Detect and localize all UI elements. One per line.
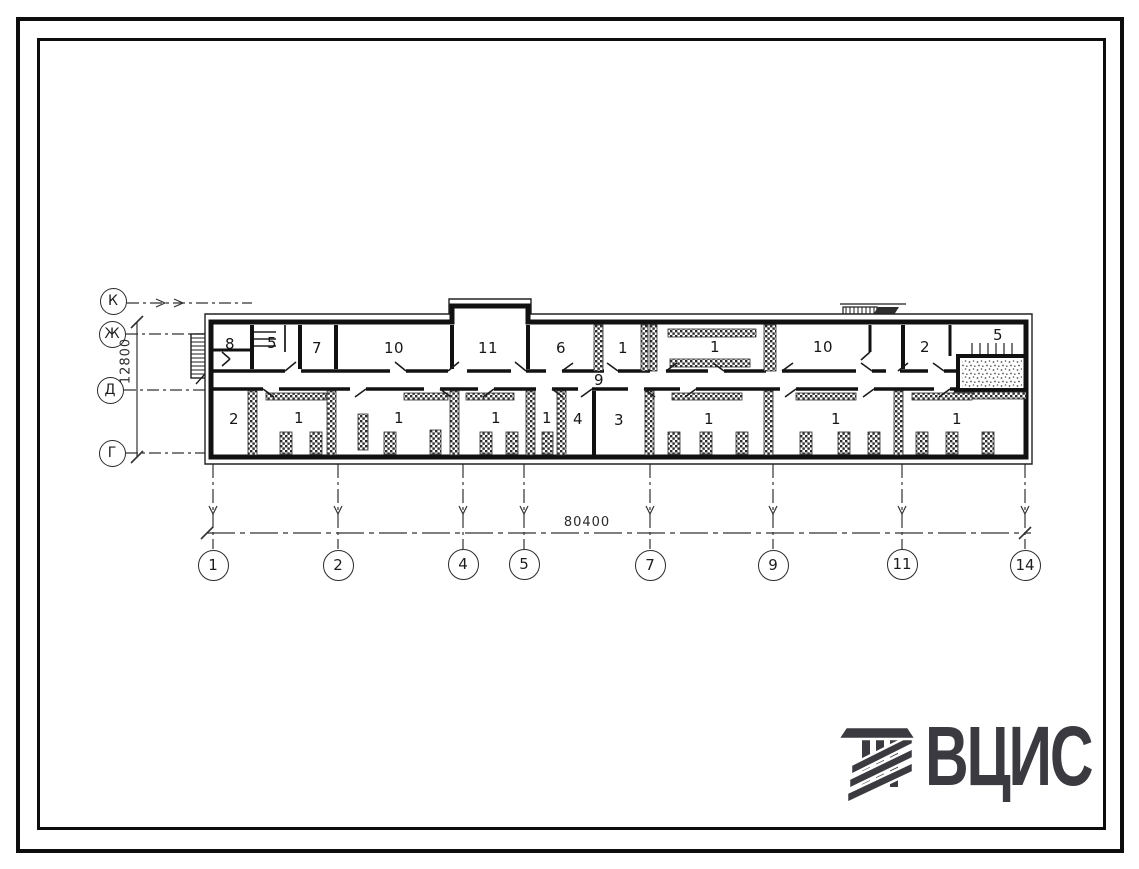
dimension-total-width: 12800 <box>119 338 134 384</box>
room-label-1: 1 <box>394 409 404 427</box>
room-label-2: 2 <box>920 338 930 356</box>
room-label-1: 1 <box>952 410 962 428</box>
axis-marker-col-9: 9 <box>758 550 789 581</box>
axis-marker-row-Г: Г <box>99 440 126 467</box>
room-label-9: 9 <box>594 371 604 389</box>
room-label-1: 1 <box>491 409 501 427</box>
room-label-1: 1 <box>618 339 628 357</box>
room-label-2: 2 <box>229 410 239 428</box>
room-label-1: 1 <box>704 410 714 428</box>
room-label-5: 5 <box>993 326 1003 344</box>
room-label-3: 3 <box>614 411 624 429</box>
room-label-1: 1 <box>831 410 841 428</box>
room-label-11: 11 <box>478 339 498 357</box>
axis-marker-col-7: 7 <box>635 550 666 581</box>
logo-emblem-icon <box>835 717 927 807</box>
room-label-1: 1 <box>542 409 552 427</box>
axis-marker-col-14: 14 <box>1010 550 1041 581</box>
axis-marker-col-5: 5 <box>509 549 540 580</box>
room-label-5: 5 <box>267 334 277 352</box>
room-label-6: 6 <box>556 339 566 357</box>
dimension-total-length: 80400 <box>564 515 610 530</box>
axis-marker-col-4: 4 <box>448 549 479 580</box>
axis-marker-col-1: 1 <box>198 550 229 581</box>
drawing-sheet: КЖДГ12457911148571011611102592111143111 … <box>0 0 1139 869</box>
room-label-4: 4 <box>573 410 583 428</box>
axis-marker-col-2: 2 <box>323 550 354 581</box>
room-label-10: 10 <box>384 339 404 357</box>
room-label-1: 1 <box>294 409 304 427</box>
logo-text: ВЦИС <box>925 714 1091 798</box>
room-label-7: 7 <box>312 339 322 357</box>
logo: ВЦИС <box>835 714 1090 809</box>
room-label-8: 8 <box>225 335 235 353</box>
axis-marker-row-К: К <box>100 288 127 315</box>
axis-marker-col-11: 11 <box>887 549 918 580</box>
room-label-10: 10 <box>813 338 833 356</box>
room-label-1: 1 <box>710 338 720 356</box>
